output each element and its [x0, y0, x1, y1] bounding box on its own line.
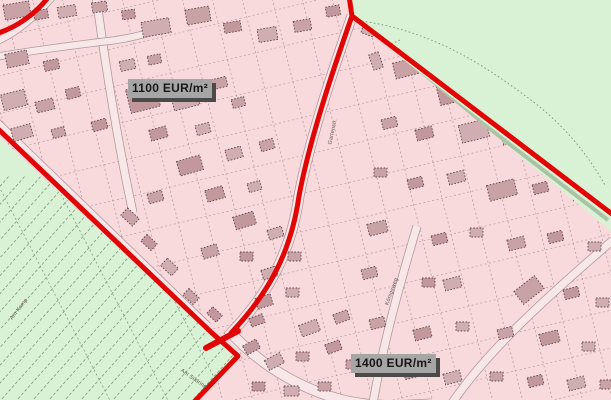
- building-footprint: [257, 26, 278, 42]
- map-canvas[interactable]: Gartenstr. Königsweg Am Südring Am Kamp: [0, 0, 611, 400]
- building-footprint: [318, 382, 331, 391]
- building-footprint: [588, 242, 601, 251]
- land-value-badge-1100: 1100 EUR/m²: [128, 79, 212, 98]
- building-footprint: [286, 288, 299, 297]
- building-footprint: [91, 1, 107, 13]
- building-footprint: [470, 228, 483, 237]
- building-footprint: [296, 352, 309, 361]
- building-footprint: [490, 372, 503, 381]
- map-viewport[interactable]: Gartenstr. Königsweg Am Südring Am Kamp …: [0, 0, 611, 400]
- building-footprint: [121, 9, 135, 20]
- building-footprint: [422, 278, 435, 287]
- land-value-badge-1400: 1400 EUR/m²: [351, 354, 436, 373]
- building-footprint: [582, 342, 595, 351]
- building-footprint: [374, 168, 387, 177]
- building-footprint: [600, 380, 611, 389]
- building-footprint: [252, 382, 265, 391]
- building-footprint: [596, 298, 609, 307]
- building-footprint: [240, 252, 253, 261]
- building-footprint: [456, 322, 469, 331]
- building-footprint: [288, 252, 301, 261]
- building-footprint: [284, 386, 299, 396]
